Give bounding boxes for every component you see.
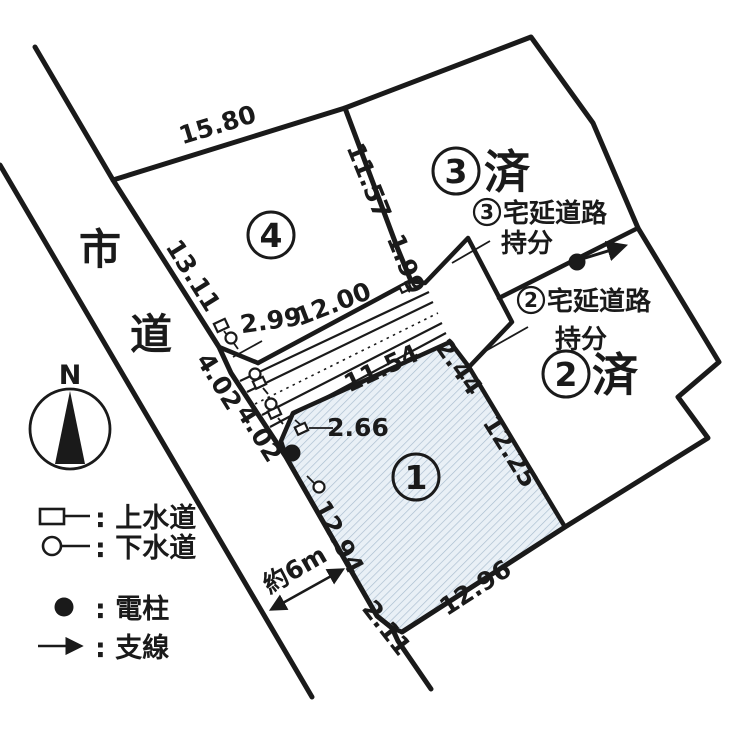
measurement-11-57: 11.57	[341, 139, 398, 223]
legend-water-icon	[40, 509, 64, 524]
legend-sewer-icon	[43, 537, 61, 555]
plot2-label: 2 済	[543, 348, 639, 402]
plot4-number: 4	[260, 216, 283, 255]
measurement-1-99: 1.99	[381, 230, 431, 298]
compass-north-label: N	[59, 360, 82, 391]
plot2-status: 済	[592, 348, 639, 402]
plot3-label: 3 済	[433, 145, 531, 199]
legend-pole-icon	[55, 598, 74, 617]
water-icon	[214, 319, 229, 332]
plot3-share-number: 3	[480, 200, 494, 224]
plot2-number: 2	[555, 355, 578, 394]
plot1-number: 1	[405, 458, 428, 497]
legend-water-label: : 上水道	[95, 502, 196, 534]
sewer-icon	[226, 333, 237, 344]
plot4-label: 4	[248, 212, 294, 258]
compass: N	[30, 360, 110, 469]
road-width-label: 約6m	[258, 540, 332, 599]
sewer-icon	[314, 482, 325, 493]
plot3-share-text: 宅延道路	[503, 198, 608, 229]
legend-sewer-label: : 下水道	[95, 532, 196, 564]
utility-pole-icon-divider	[569, 254, 586, 271]
sewer-icon	[266, 399, 277, 410]
map-canvas: 約6m 15.80 13.11 11.57 1.99 2.99 12.00 4.…	[0, 0, 750, 750]
plot2-road-share-label: 2 宅延道路 持分	[518, 286, 652, 355]
cadastral-map: 約6m 15.80 13.11 11.57 1.99 2.99 12.00 4.…	[0, 0, 750, 750]
measurement-2-66: 2.66	[327, 413, 389, 442]
plot2-share-text: 宅延道路	[547, 286, 652, 317]
legend-pole-label: : 電柱	[95, 594, 169, 625]
plot2-share-text2: 持分	[555, 325, 607, 355]
plot3-status: 済	[484, 145, 531, 199]
compass-needle-icon	[55, 391, 85, 464]
road-name-char2: 道	[130, 310, 172, 359]
plot3-number: 3	[445, 152, 468, 191]
plot2-share-number: 2	[524, 288, 538, 312]
legend: : 上水道 : 下水道 : 電柱 : 支線	[38, 502, 196, 664]
measurement-15-80: 15.80	[175, 99, 259, 150]
plot3-road-share-label: 3 宅延道路 持分	[474, 198, 608, 259]
road-name-char1: 市	[79, 225, 121, 274]
sewer-icon	[250, 369, 261, 380]
legend-guywire-label: : 支線	[95, 632, 169, 664]
plot3-share-text2: 持分	[501, 229, 553, 259]
